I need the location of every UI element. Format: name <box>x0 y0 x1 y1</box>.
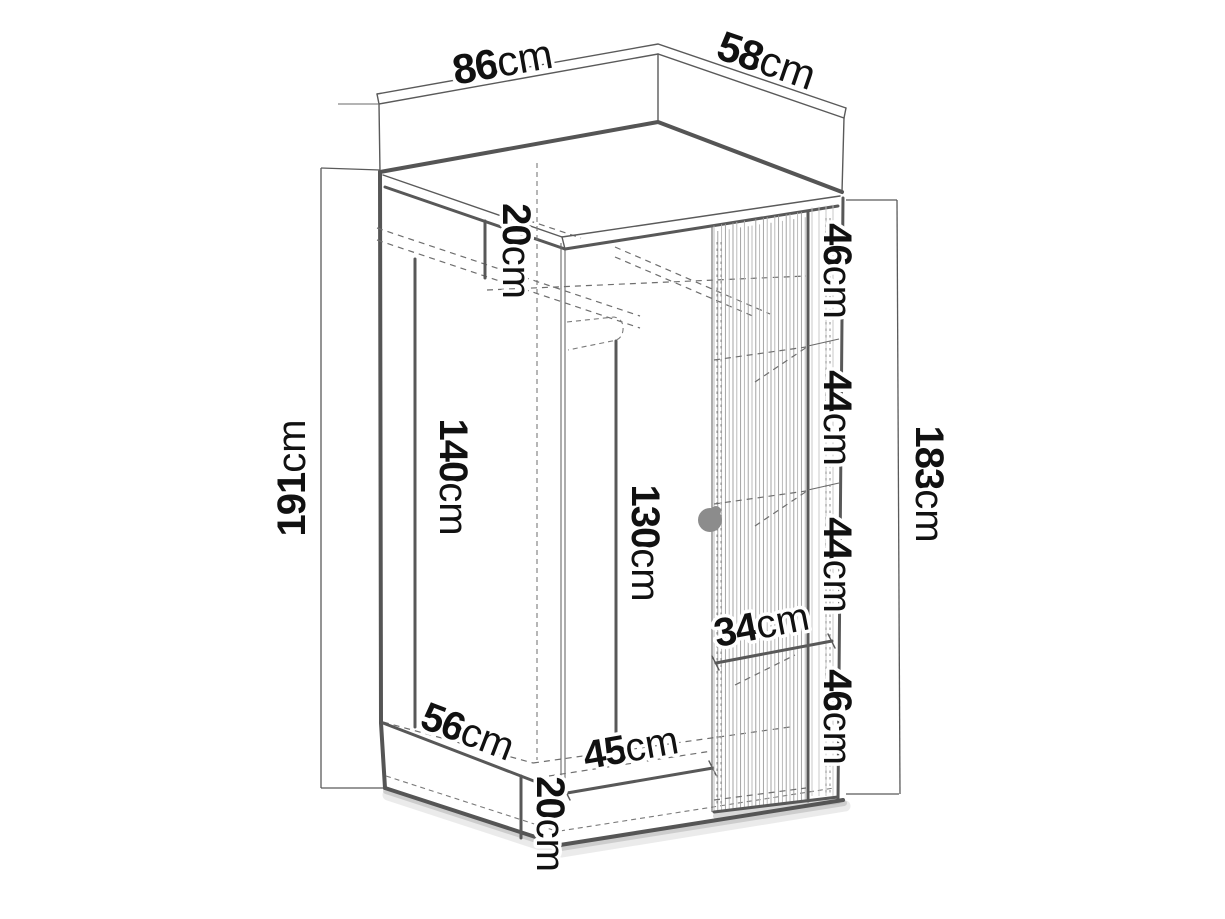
label-rail-height: 130cm <box>623 484 667 601</box>
label-top-left-width: 86cm <box>449 30 556 94</box>
wardrobe-diagram: 86cm 58cm 191cm 183cm 20cm 140cm 130cm 4… <box>0 0 1225 919</box>
label-top-gap: 20cm <box>494 203 538 299</box>
label-shelf-gap-2: 44cm <box>815 370 859 466</box>
label-floor-left-width: 56cm <box>415 694 520 769</box>
label-floor-right-width: 45cm <box>580 718 682 778</box>
label-total-height: 191cm <box>270 419 314 536</box>
floor-shadow <box>386 791 845 852</box>
door-track <box>562 196 840 249</box>
label-plinth-height: 20cm <box>528 776 572 872</box>
dimension-lines <box>321 104 900 838</box>
label-shelf-gap-1: 46cm <box>815 223 859 319</box>
dimension-labels: 86cm 58cm 191cm 183cm 20cm 140cm 130cm 4… <box>270 22 951 872</box>
label-hanging-height: 140cm <box>431 418 475 535</box>
diagram-canvas: 86cm 58cm 191cm 183cm 20cm 140cm 130cm 4… <box>0 0 1225 919</box>
door-knob <box>698 506 722 532</box>
label-top-right-width: 58cm <box>711 22 822 99</box>
label-interior-height: 183cm <box>907 425 951 542</box>
label-shelf-gap-4: 46cm <box>815 669 859 765</box>
dimension-line-total-height <box>321 104 384 788</box>
label-shelf-gap-3: 44cm <box>815 517 859 613</box>
